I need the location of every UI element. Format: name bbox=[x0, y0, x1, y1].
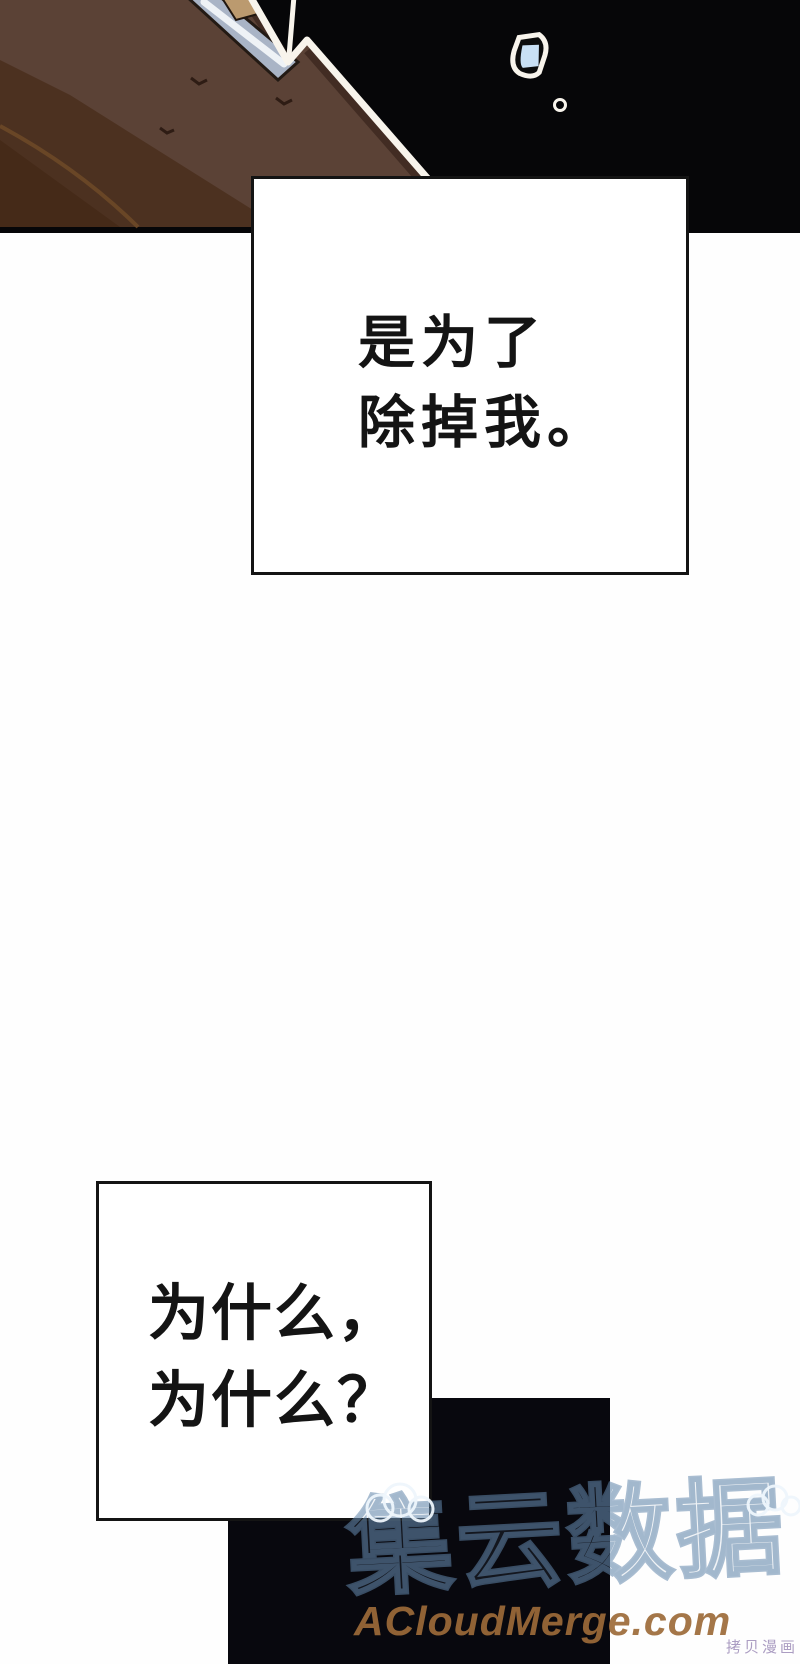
speech-2-line-1: 为什么， bbox=[148, 1270, 429, 1357]
speech-2-line-2: 为什么？ bbox=[148, 1357, 429, 1444]
speech-box-1: 是为了 除掉我。 bbox=[251, 176, 689, 575]
watermark-cloud-icon bbox=[358, 1480, 444, 1526]
bubble-ring-icon bbox=[555, 100, 566, 111]
speech-1-line-1: 是为了 bbox=[358, 303, 686, 383]
speech-1-line-2: 除掉我。 bbox=[358, 383, 686, 463]
speech-box-2: 为什么， 为什么？ bbox=[96, 1181, 432, 1521]
webtoon-page: 是为了 除掉我。 为什么， 为什么？ 集云数据 ACloudMerge.com … bbox=[0, 0, 800, 1664]
watermark-copy-note: 拷贝漫画 bbox=[726, 1636, 798, 1657]
watermark-cloud-icon-2 bbox=[742, 1482, 800, 1520]
watermark-site-url: ACloudMerge.com bbox=[354, 1598, 731, 1645]
